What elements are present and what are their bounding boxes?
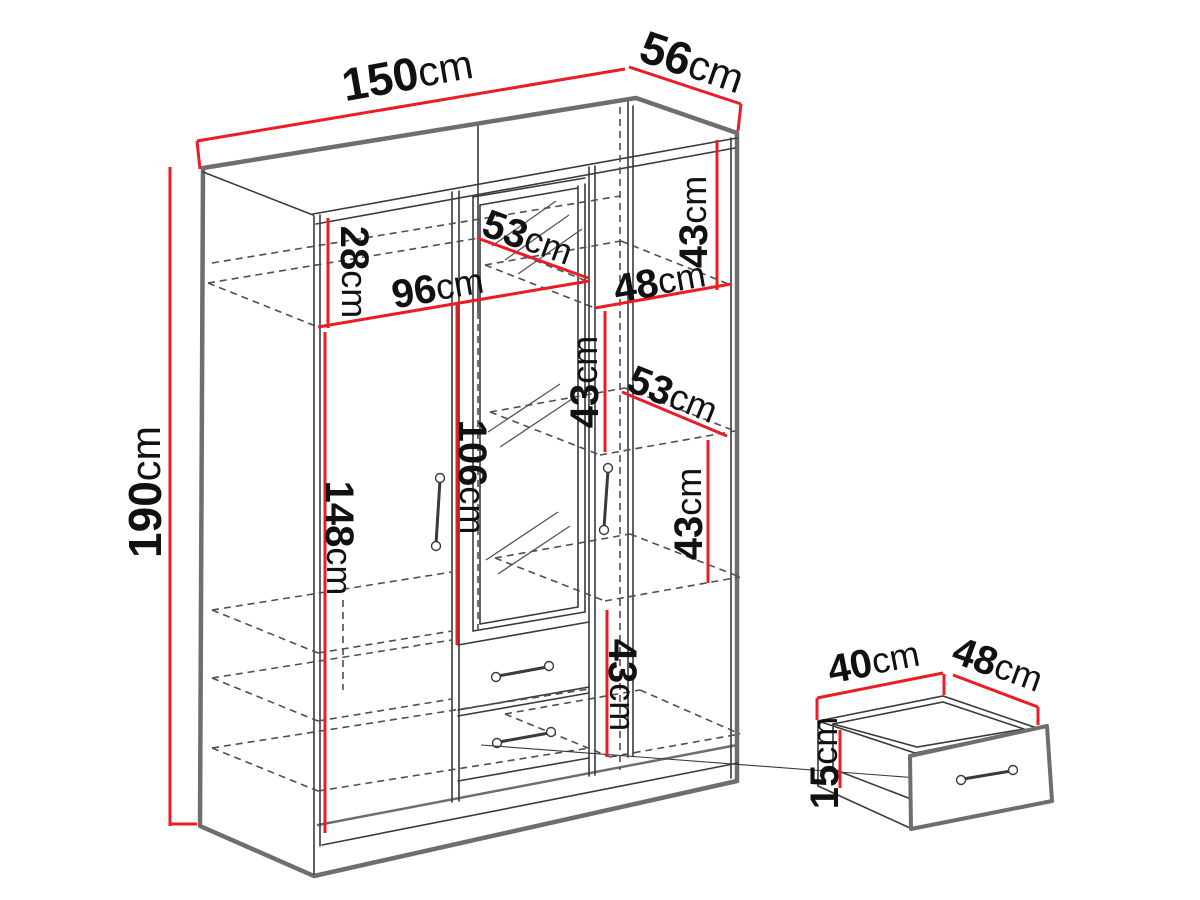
dimension-label: 106cm [450,420,494,535]
drawer-detail [818,696,1052,829]
dimension-label: 53cm [622,357,724,432]
dimension-label: 28cm [332,226,376,319]
drawer-handle-upper-icon [492,662,554,682]
dimension-line [738,104,741,131]
wardrobe-drawers [458,622,589,781]
dimension-label: 43cm [563,336,607,429]
door-handle-left-icon [432,474,445,551]
dimension-label: 56cm [634,20,751,104]
dimension-label: 190cm [119,426,171,558]
dimension-label: 96cm [388,258,486,317]
dimension-label: 15cm [803,717,847,810]
dimension-label: 43cm [600,639,644,732]
drawer-handle-lower-icon [493,728,556,748]
dimension-label: 48cm [947,628,1049,701]
dimension-label: 150cm [338,37,477,111]
dimension-labels: 150cm56cm190cm28cm96cm53cm48cm43cm43cm53… [119,20,1049,809]
dimension-label: 43cm [672,176,716,269]
dimension-line [197,141,200,169]
diagram-page: 150cm56cm190cm28cm96cm53cm48cm43cm43cm53… [0,0,1200,900]
dimension-label: 148cm [317,481,361,596]
wardrobe-dimension-diagram: 150cm56cm190cm28cm96cm53cm48cm43cm43cm53… [0,0,1200,900]
dimension-label: 53cm [477,201,579,274]
dimension-label: 40cm [824,631,923,692]
wardrobe-top-face [203,138,737,224]
drawer-leader-line [481,745,958,781]
door-handle-right-icon [600,464,613,535]
dimension-label: 43cm [667,468,711,561]
